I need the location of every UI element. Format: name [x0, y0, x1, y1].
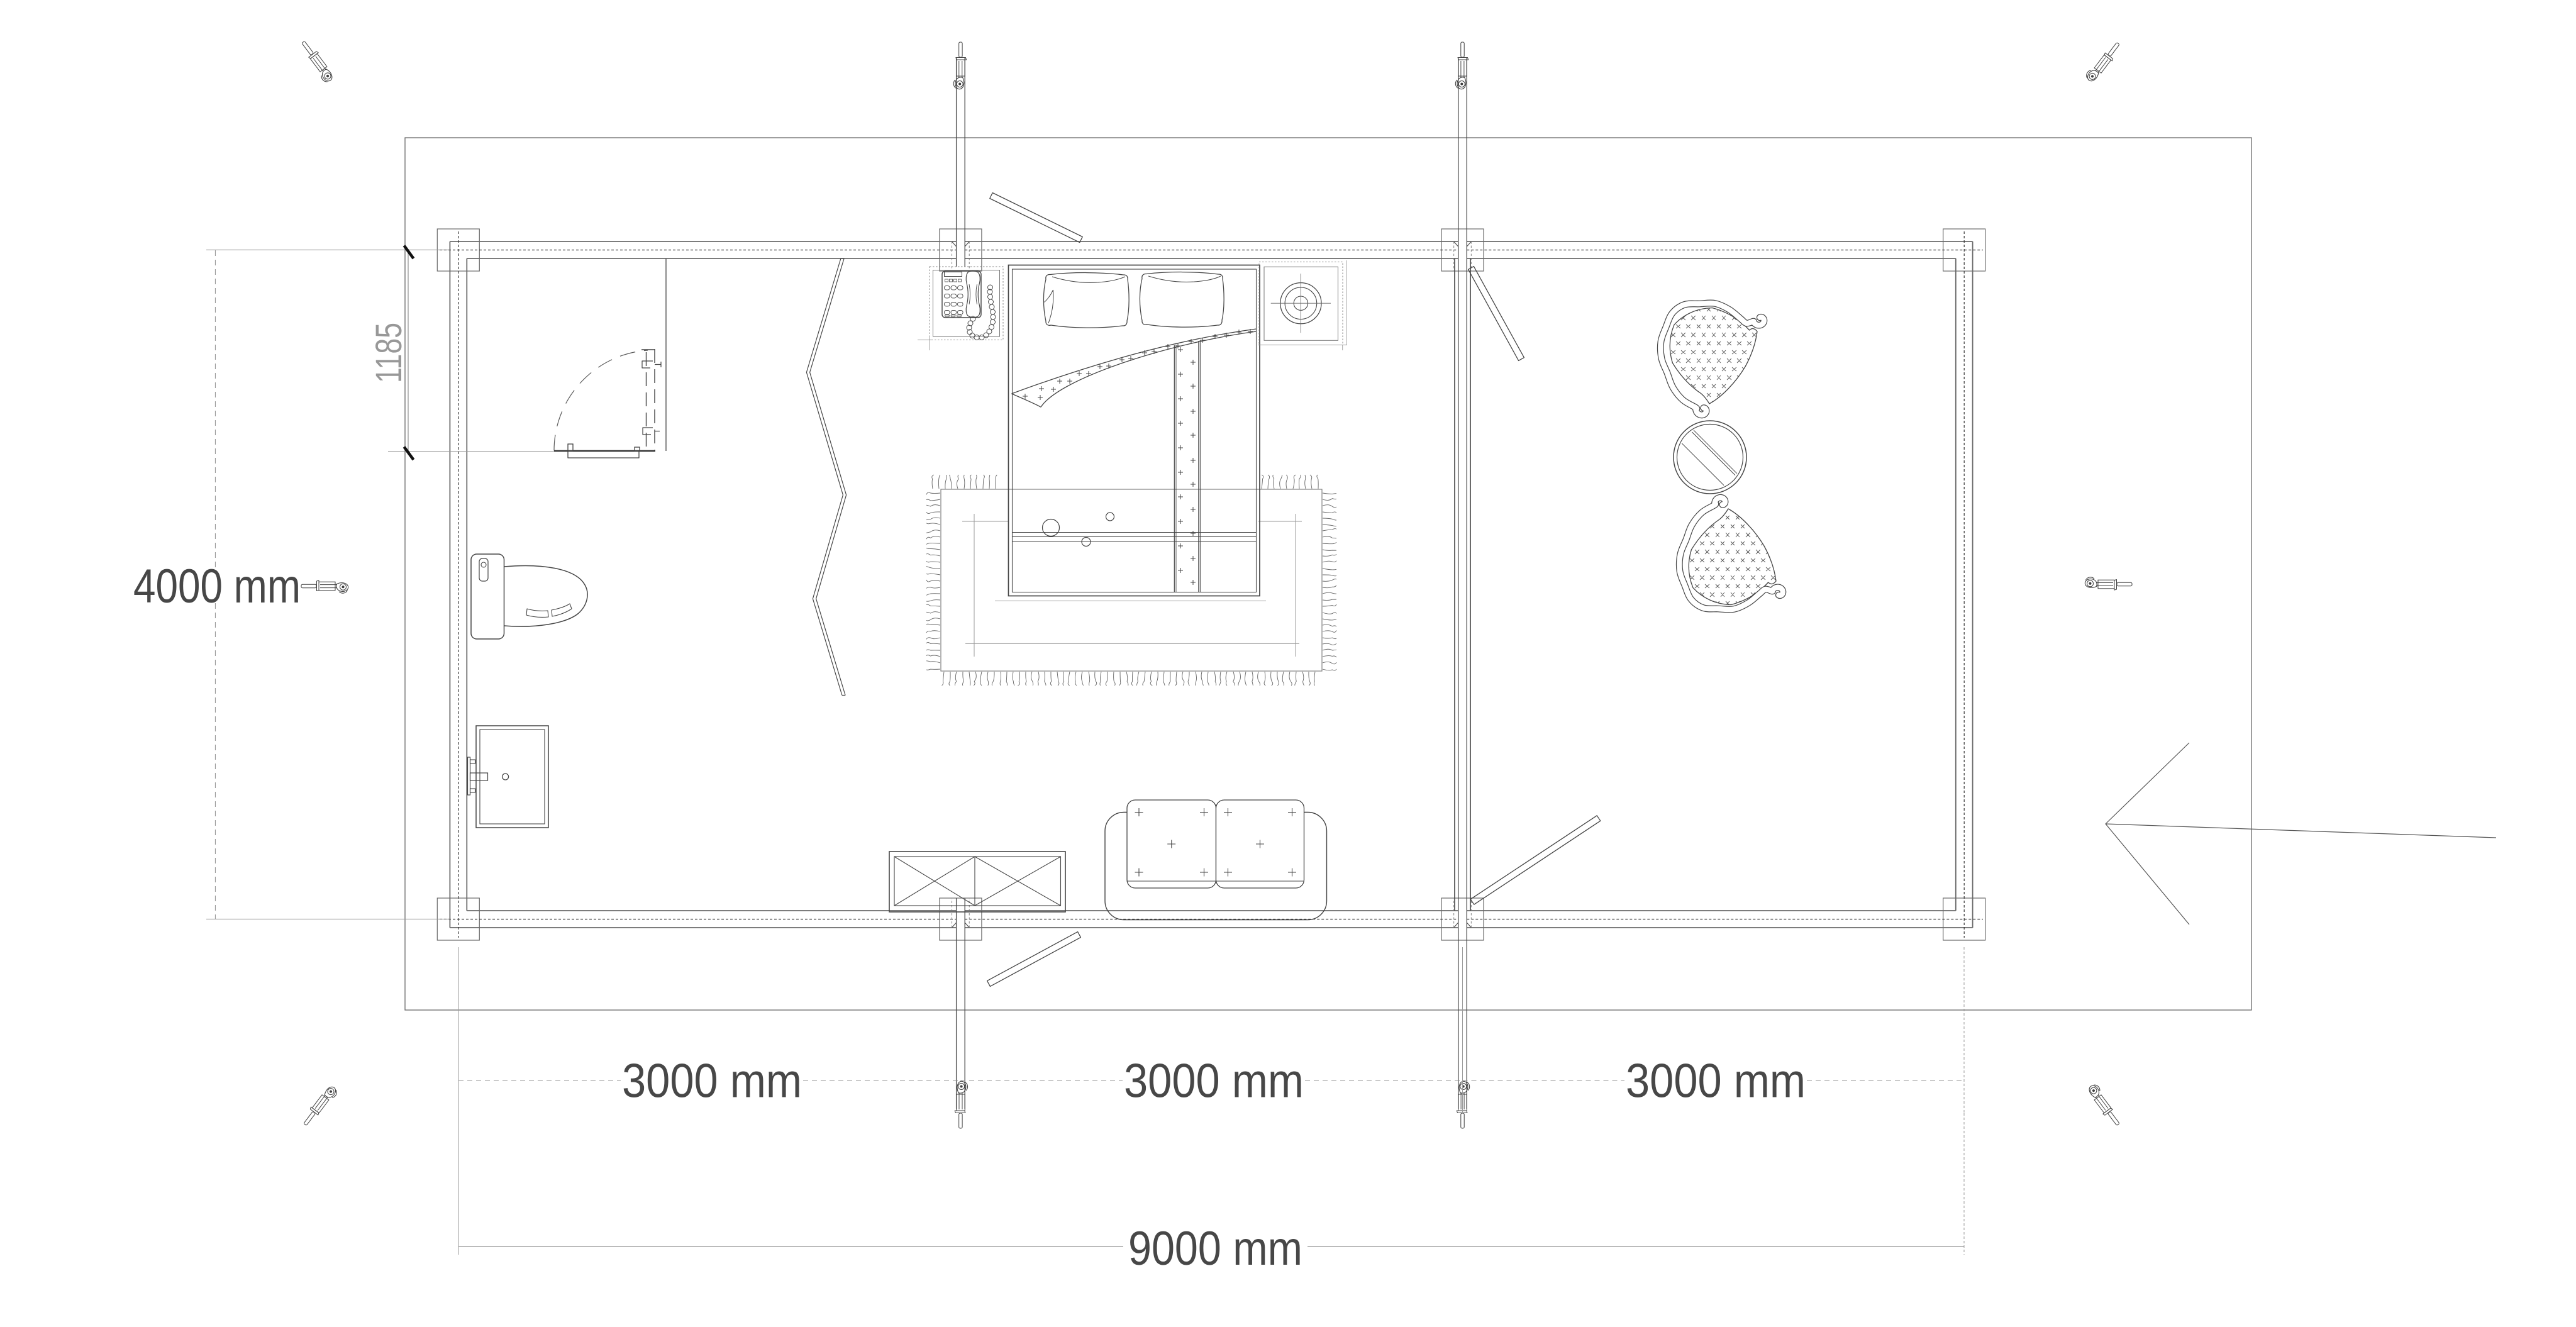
svg-text:9000 mm: 9000 mm [1128, 1222, 1302, 1275]
svg-text:3000 mm: 3000 mm [622, 1055, 802, 1108]
svg-text:1185: 1185 [369, 323, 409, 383]
svg-text:3000 mm: 3000 mm [1626, 1055, 1806, 1108]
svg-text:4000 mm: 4000 mm [133, 560, 301, 613]
svg-text:3000 mm: 3000 mm [1124, 1055, 1304, 1108]
